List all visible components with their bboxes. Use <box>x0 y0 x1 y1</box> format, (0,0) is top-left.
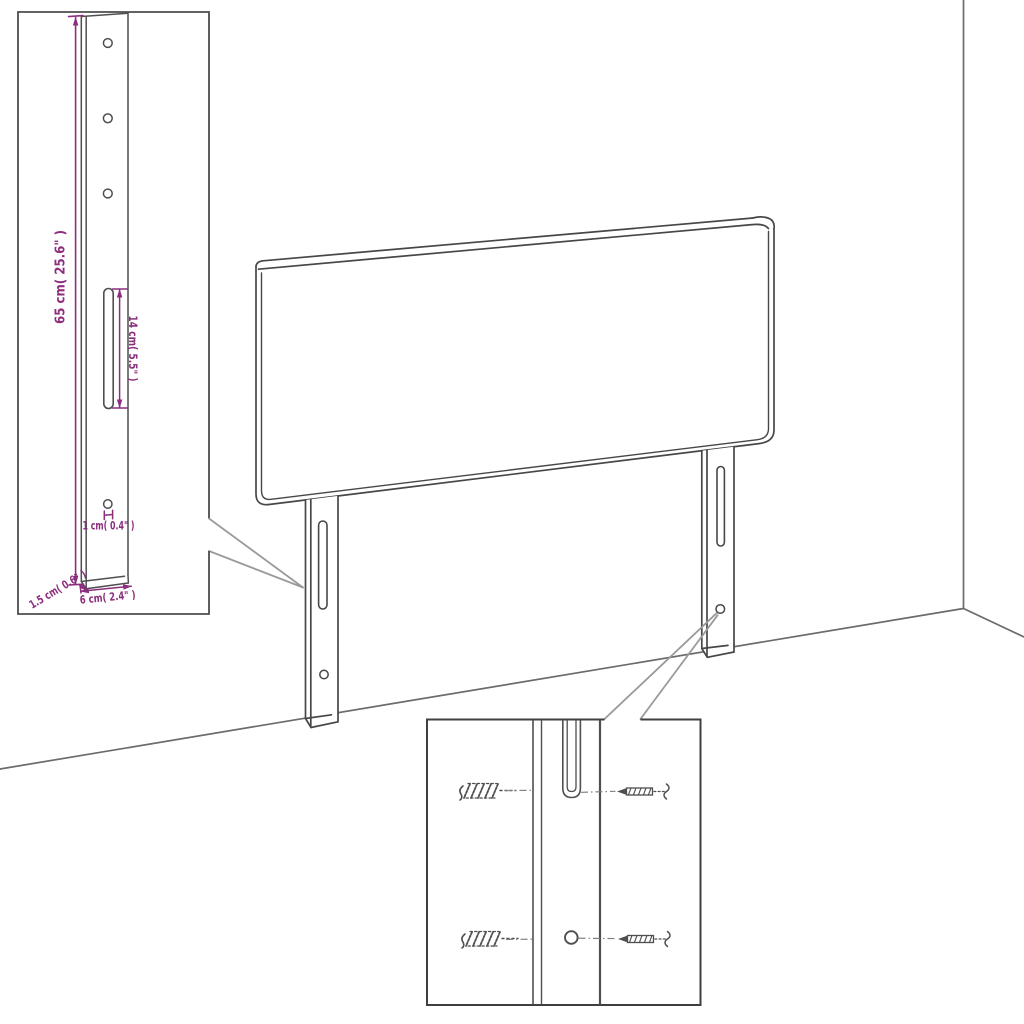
hardware-detail-inset <box>427 720 701 1006</box>
screw-tip <box>618 936 628 943</box>
screw-icon-top <box>617 784 669 799</box>
dimension-cap <box>69 16 84 17</box>
plug-tip <box>460 786 463 800</box>
headboard-panel-face <box>256 217 774 505</box>
headboard-panel <box>256 217 774 505</box>
callout-wedge-left <box>209 519 303 588</box>
dimension-65cm-label: 65 cm( 25.6" ) <box>53 230 69 324</box>
right-mounting-leg <box>702 447 734 658</box>
channel-slot-outer <box>563 721 581 798</box>
dimension-14cm-label: 14 cm( 5.5" ) <box>126 316 139 382</box>
left-mounting-leg <box>306 496 339 728</box>
screw-icon-bottom <box>618 932 670 947</box>
hardware-leg-channel <box>533 721 600 1005</box>
channel-leg-hole <box>565 931 578 944</box>
product-diagram: 65 cm( 25.6" ) 14 cm( 5.5" ) 1 cm( 0.4" … <box>0 0 1024 1024</box>
dimension-line <box>104 515 112 516</box>
callout-line <box>209 551 303 588</box>
hardware-inset-border <box>427 720 701 1006</box>
floor-line-right <box>964 609 1024 638</box>
wall-plug-icon-top <box>460 784 516 801</box>
callout-line <box>641 615 718 719</box>
dimension-1cm-label: 1 cm( 0.4" ) <box>83 520 135 533</box>
diagram-canvas: 65 cm( 25.6" ) 14 cm( 5.5" ) 1 cm( 0.4" … <box>0 0 1024 1024</box>
floor-line-left <box>0 609 964 770</box>
channel-slot-inner <box>567 721 576 792</box>
screw-tip <box>617 788 627 795</box>
plug-tip <box>462 934 465 948</box>
dimension-1-5cm-label: 1.5 cm( 0.6" ) <box>27 567 89 611</box>
leader-line <box>581 791 616 792</box>
callout-line <box>209 519 303 588</box>
bracket-detail-inset: 65 cm( 25.6" ) 14 cm( 5.5" ) 1 cm( 0.4" … <box>18 12 209 614</box>
